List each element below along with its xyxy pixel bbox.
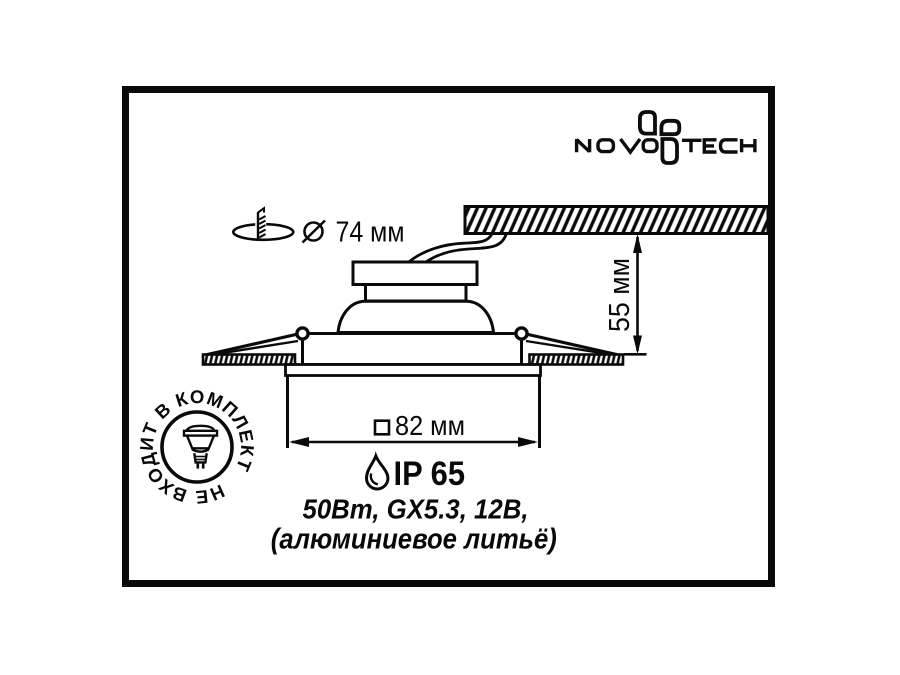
svg-text:50Вт, GX5.3, 12В,: 50Вт, GX5.3, 12В,	[303, 494, 529, 525]
svg-text:74 мм: 74 мм	[336, 217, 405, 249]
svg-text:82 мм: 82 мм	[395, 410, 465, 441]
svg-text:(алюминиевое литьё): (алюминиевое литьё)	[271, 524, 557, 556]
svg-text:55 мм: 55 мм	[604, 258, 636, 332]
svg-text:IP 65: IP 65	[394, 455, 466, 493]
